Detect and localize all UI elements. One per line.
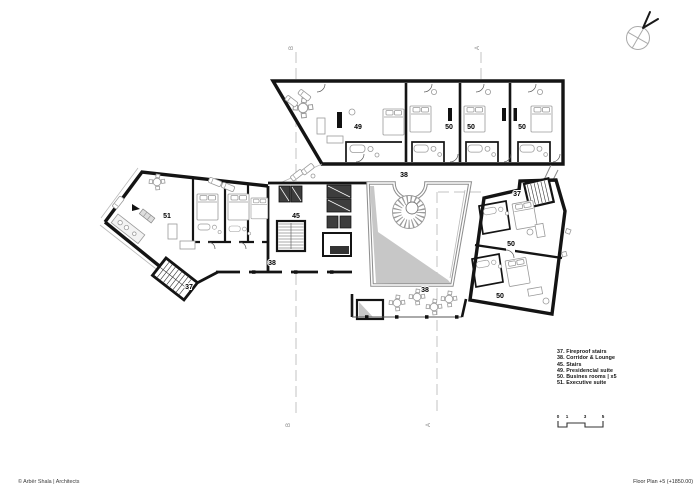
room-label-50: 50 bbox=[507, 241, 515, 248]
floor-plan-canvas: 49505050383745515038373850 BABA 0135 bbox=[0, 0, 700, 495]
room-label-50: 50 bbox=[467, 124, 475, 131]
section-marker-a: A bbox=[475, 46, 481, 50]
section-marker-b: B bbox=[289, 46, 295, 50]
drawing-sheet: 49505050383745515038373850 BABA 0135 37.… bbox=[0, 0, 700, 495]
room-label-38: 38 bbox=[400, 172, 408, 179]
scale-bar-labels: 0135 bbox=[557, 414, 605, 419]
stairs-45 bbox=[277, 221, 305, 251]
room-label-45: 45 bbox=[292, 213, 300, 220]
room-label-37: 37 bbox=[185, 284, 193, 291]
top-wing bbox=[273, 81, 563, 164]
atrium bbox=[368, 183, 470, 285]
right-wing bbox=[470, 165, 571, 314]
scale-label-3: 3 bbox=[584, 414, 587, 419]
left-wing bbox=[100, 168, 268, 300]
room-label-50: 50 bbox=[518, 124, 526, 131]
lounge-terrace bbox=[352, 289, 466, 319]
corridor-terrace bbox=[280, 163, 322, 183]
legend-item: 38. Corridor & Lounge bbox=[557, 355, 617, 361]
room-label-49: 49 bbox=[354, 124, 362, 131]
section-marker-a: A bbox=[426, 423, 432, 427]
north-arrow-compass-icon bbox=[627, 12, 659, 50]
room-label-50: 50 bbox=[445, 124, 453, 131]
room-label-38: 38 bbox=[268, 260, 276, 267]
scale-label-1: 1 bbox=[566, 414, 569, 419]
room-label-37: 37 bbox=[513, 191, 521, 198]
legend: 37. Fireproof stairs38. Corridor & Loung… bbox=[557, 349, 617, 387]
drawing-title: Floor Plan +5 (+1850.00) bbox=[633, 479, 693, 485]
section-marker-b: B bbox=[286, 423, 292, 427]
scale-bar: 0135 bbox=[557, 414, 605, 427]
scale-label-5: 5 bbox=[602, 414, 605, 419]
legend-item: 51. Executive suite bbox=[557, 380, 617, 386]
room-label-51: 51 bbox=[163, 213, 171, 220]
room-label-50: 50 bbox=[496, 293, 504, 300]
copyright-note: © Arbër Shala | Architects bbox=[18, 479, 79, 485]
spiral-stair bbox=[393, 196, 426, 229]
room-label-38: 38 bbox=[421, 287, 429, 294]
scale-label-0: 0 bbox=[557, 414, 560, 419]
